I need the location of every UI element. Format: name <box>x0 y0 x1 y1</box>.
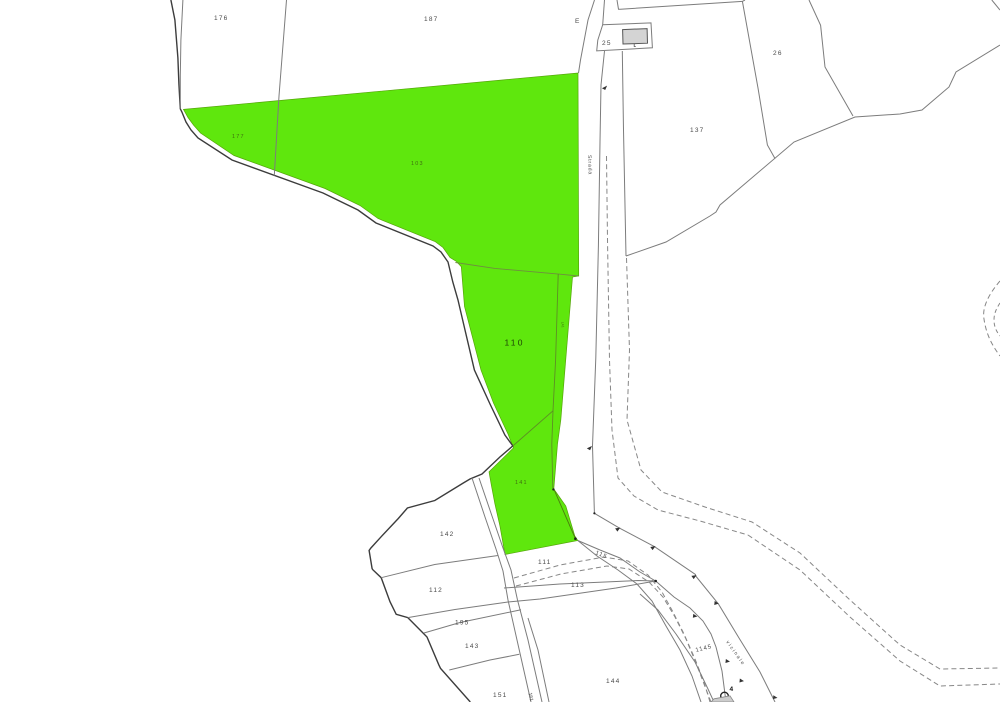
svg-text:103: 103 <box>411 161 424 167</box>
svg-text:141: 141 <box>515 480 528 486</box>
svg-text:195: 195 <box>455 620 469 627</box>
svg-text:187: 187 <box>424 16 438 23</box>
svg-text:112: 112 <box>429 587 443 594</box>
svg-text:177: 177 <box>232 134 245 140</box>
svg-text:176: 176 <box>214 15 228 22</box>
svg-text:25: 25 <box>602 40 612 47</box>
svg-text:26: 26 <box>773 50 783 57</box>
svg-text:151: 151 <box>493 692 507 699</box>
svg-text:E: E <box>575 18 581 25</box>
svg-text:142: 142 <box>440 531 454 538</box>
svg-text:110: 110 <box>505 338 525 348</box>
svg-text:143: 143 <box>465 643 479 650</box>
svg-text:4: 4 <box>730 686 734 693</box>
svg-text:144: 144 <box>606 678 620 685</box>
svg-text:113: 113 <box>571 582 585 589</box>
svg-text:137: 137 <box>690 127 704 134</box>
svg-text:Strada: Strada <box>586 155 593 175</box>
svg-text:111: 111 <box>538 559 551 566</box>
